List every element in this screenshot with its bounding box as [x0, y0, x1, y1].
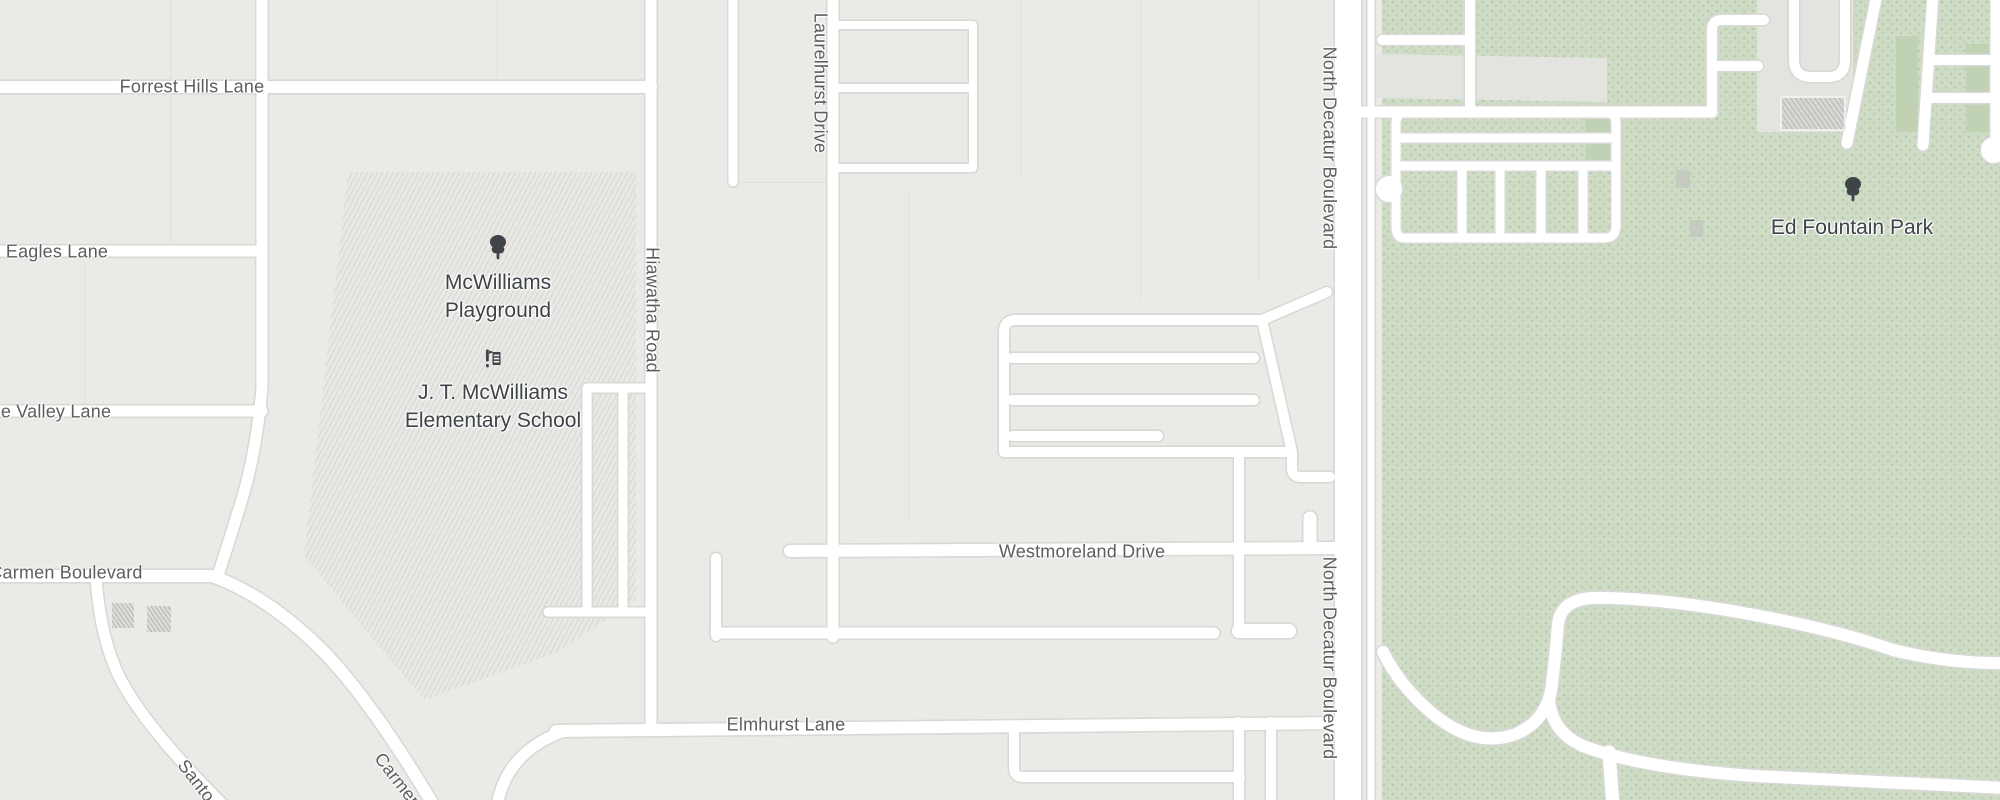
poi-label-playground: McWilliams Playground: [445, 269, 551, 325]
poi-label-park: Ed Fountain Park: [1771, 214, 1933, 242]
poi-label-line: Elementary School: [405, 407, 581, 435]
tree-icon: [1841, 176, 1865, 208]
poi-label-school: J. T. McWilliams Elementary School: [405, 379, 581, 435]
poi-label-line: Ed Fountain Park: [1771, 214, 1933, 242]
map-canvas[interactable]: Forrest Hills Lane Eagles Lane e Valley …: [0, 0, 2000, 800]
building: [112, 603, 134, 628]
picnic-area-icon: [1676, 170, 1690, 188]
street-label-carmen-blvd: Carmen Boulevard: [0, 563, 143, 584]
tree-icon: [486, 234, 510, 266]
school-icon: [482, 349, 504, 376]
park-building: [1780, 96, 1846, 131]
building: [147, 606, 171, 632]
street-label-laurelhurst: Laurelhurst Drive: [810, 13, 831, 153]
roads-layer: [0, 0, 2000, 800]
street-label-elmhurst: Elmhurst Lane: [727, 715, 846, 736]
street-label-eagles: Eagles Lane: [6, 242, 108, 263]
street-label-westmoreland: Westmoreland Drive: [999, 542, 1165, 563]
poi-label-line: J. T. McWilliams: [405, 379, 581, 407]
street-label-hiawatha: Hiawatha Road: [642, 247, 663, 373]
picnic-area-icon: [1690, 220, 1703, 237]
street-label-forrest-hills: Forrest Hills Lane: [120, 77, 265, 98]
street-label-n-decatur-upper: North Decatur Boulevard: [1319, 47, 1340, 250]
poi-label-line: McWilliams: [445, 269, 551, 297]
street-label-n-decatur-lower: North Decatur Boulevard: [1319, 557, 1340, 760]
street-label-valley: e Valley Lane: [1, 402, 111, 423]
poi-label-line: Playground: [445, 297, 551, 325]
